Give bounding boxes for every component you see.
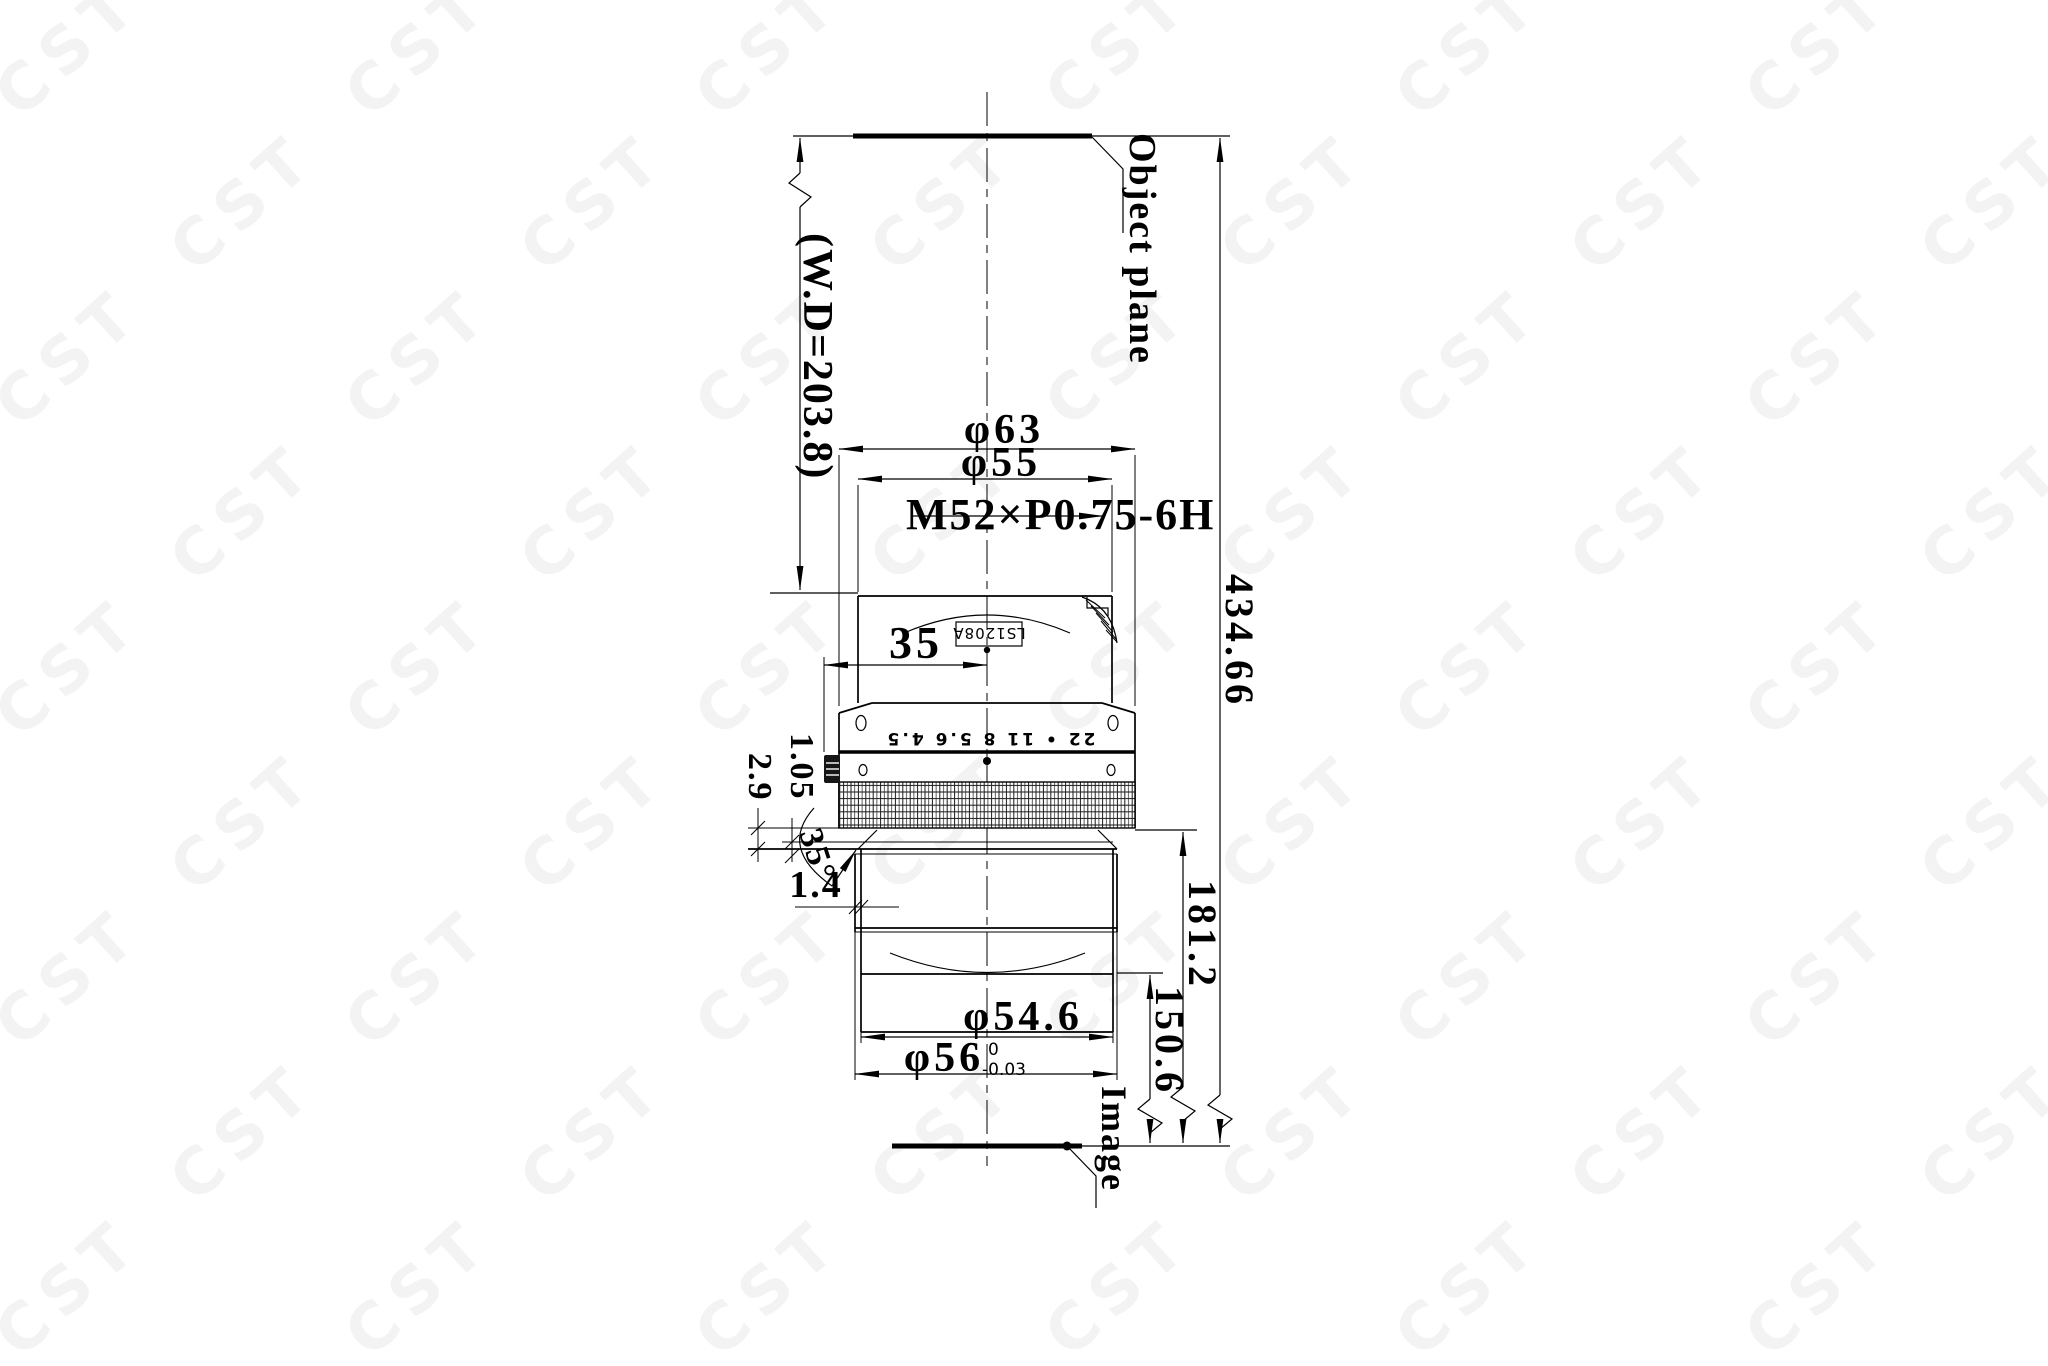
total-length-label: 434.66 [1217, 574, 1262, 708]
dim-1-05-label: 1.05 [783, 733, 820, 801]
dia546-label: φ54.6 [963, 994, 1083, 1040]
dim-2-9-label: 2.9 [741, 753, 778, 802]
aperture-scale-label: 22 • 11 8 5.6 4.5 [885, 728, 1096, 748]
lock-screw [824, 755, 840, 783]
object-plane-label: Object plane [1121, 133, 1163, 365]
thread-callout: M52×P0.75-6H [906, 490, 1215, 539]
working-distance-label: (W.D=203.8) [794, 233, 840, 480]
dia55-label: φ55 [961, 440, 1041, 486]
model-label: LS1208A [952, 624, 1025, 642]
length-150-label: 150.6 [1147, 986, 1192, 1096]
offset35-label: 35 [889, 617, 943, 668]
aperture-index-dot [983, 757, 991, 765]
lens-dimension-drawing: CST CST Object plane (W.D=203.8) 434.66 … [0, 0, 2048, 1366]
dia56-label: φ56 [904, 1035, 984, 1081]
thread-spec-label: M52×P0.75-6H [906, 490, 1215, 539]
dia56-tolerance-upper: 0 [988, 1040, 999, 1060]
drawing-canvas: CST CST Object plane (W.D=203.8) 434.66 … [0, 0, 2048, 1366]
image-plane-label: Image [1094, 1086, 1134, 1192]
watermark-layer [0, 0, 2048, 1366]
dim-1-4-label: 1.4 [789, 864, 843, 906]
index-dot [984, 647, 990, 653]
focus-knurl [839, 782, 1135, 828]
length-181-label: 181.2 [1180, 880, 1225, 990]
dia56-tolerance-lower: -0.03 [982, 1060, 1026, 1080]
